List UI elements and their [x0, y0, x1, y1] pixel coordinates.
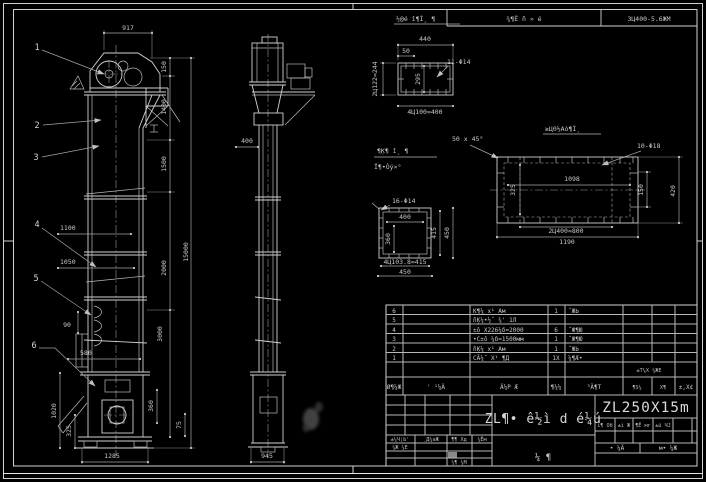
side-view: 400 945	[236, 34, 315, 464]
cad-drawing-screenshot: ¾¶Ё ñ » é 3Ц400-5.6ЖМ	[0, 0, 706, 482]
dim-400: 400	[241, 137, 253, 145]
row-material: ˝Ж¶Ю	[568, 336, 583, 343]
title-block: ±¼Ч¦Ь' ¸Д¼аЖ ¶¶ Хд ¼Ём ¼Ж ¼Е ¼¶ ¼М ZL¶• …	[386, 395, 697, 466]
dim-90: 90	[63, 321, 71, 329]
sheet-label-left: • ¼Ä	[610, 445, 625, 452]
dim-sq-450r: 450	[443, 227, 451, 239]
balloon-2: 2	[34, 121, 39, 131]
holes-10-d18: 10-Φ18	[637, 142, 661, 150]
drawing-frame	[3, 3, 703, 479]
dim-2x122: 2Ц122=244	[371, 61, 379, 96]
dim-295: 295	[414, 73, 422, 85]
sig-header-3: ¶¶ Хд	[451, 437, 467, 443]
row-qty: 1	[554, 336, 558, 343]
row-seq: 4	[392, 327, 396, 334]
screen-smudge	[303, 402, 323, 432]
dim-sq-450b: 450	[399, 268, 411, 276]
info-label-3: ¶Ё мг	[635, 422, 651, 429]
detail-square-flange: 16-Φ14 400 360 415 450 4Ц103.8=415 450	[372, 197, 453, 276]
dim-panel-325: 325	[509, 184, 517, 196]
dim-945: 945	[261, 452, 273, 460]
balloon-5: 5	[33, 274, 38, 284]
row-seq: 2	[392, 346, 396, 353]
dim-917: 917	[122, 24, 134, 32]
top-right-strip: ¾¶Ё ñ » é 3Ц400-5.6ЖМ	[447, 10, 697, 26]
strip-cell-1: ¾¶Ё ñ » é	[506, 14, 541, 23]
row-seq: 3	[392, 336, 396, 343]
header-qty: ¶¼¼	[551, 384, 562, 391]
dim-1020: 1020	[50, 403, 58, 419]
dim-sq-360: 360	[384, 233, 392, 245]
balloon-6: 6	[31, 341, 36, 351]
dim-2x400: 2Ц400=800	[548, 227, 583, 235]
cad-canvas: ¾¶Ё ñ » é 3Ц400-5.6ЖМ	[0, 0, 706, 482]
strip-cell-2: 3Ц400-5.6ЖМ	[627, 15, 670, 23]
dim-440: 440	[419, 35, 431, 43]
drawing-subtitle: ¼ ¶	[535, 453, 551, 463]
balloon-4: 4	[34, 220, 39, 230]
header-remark: ±,Х¢	[679, 384, 694, 391]
dim-2000: 2000	[160, 260, 168, 276]
header-weight-1: ¶Ѕ¼	[632, 385, 641, 391]
dim-1400: 1400	[160, 99, 168, 115]
row-qty: 1Х	[552, 355, 560, 362]
sig-header-2: ¸Д¼аЖ	[423, 437, 439, 443]
header-weight: ±Т¼Х ¼ЖЕ	[637, 368, 662, 374]
holes-11-d14: 11-Φ14	[447, 58, 471, 66]
info-label-1: ì¶ Об	[597, 422, 613, 429]
note-line-1: ¶Ķ¶ î¸ ¶	[377, 147, 408, 156]
dim-1098: 1098	[564, 175, 580, 183]
row-name: Ķ¶¼ х¹ Ам	[473, 308, 506, 315]
row-seq: 6	[392, 308, 396, 315]
dim-580: 580	[80, 349, 92, 357]
dim-3000: 3000	[156, 326, 164, 342]
sig-row-2: ¼Ж ¼Е	[392, 445, 408, 451]
highlight-cell	[448, 452, 457, 458]
balloon-3: 3	[33, 153, 38, 163]
header-weight-2: Х¶	[660, 385, 666, 391]
row-name: СÄ¼˝ Х¹ ¶Д	[473, 355, 510, 362]
row-name: ñĶ¼ х¹ Ам	[473, 346, 506, 353]
info-label-4: ±ü ЧЈ	[655, 423, 671, 429]
dim-1190: 1190	[559, 238, 575, 246]
sheet-label-right: м• ¼Ж	[659, 445, 677, 452]
dim-150: 150	[160, 61, 168, 73]
header-seq: Ø¶¼Ж	[387, 384, 402, 391]
row-qty: 6	[554, 327, 558, 334]
sig-header-4: ¼Ём	[477, 436, 486, 443]
header-name: Ä¼Р Æ	[500, 384, 518, 391]
dim-sq-415: 415	[430, 227, 438, 239]
sig-row-4: ¼¶ ¼М	[451, 460, 467, 466]
row-qty: 1	[554, 308, 558, 315]
row-material: ˝Ж¶Ю	[568, 327, 583, 334]
header-material: ³Ä¶Т	[587, 384, 602, 391]
info-label-2: ±ì Ж	[618, 422, 631, 429]
detail-casing-panel: ≥Ц0½Аò¶Ì¸ 50 x 45° 10-Φ18 1098 325	[452, 124, 683, 246]
balloon-1: 1	[34, 43, 39, 53]
row-name: •С±ô ¼δ=1500мм	[473, 336, 524, 343]
dim-1100: 1100	[60, 224, 76, 232]
drawing-title: ZL¶• ê½ì d é¼ú	[485, 412, 602, 427]
detail-panel-title: ≥Ц0½Аò¶Ì¸	[545, 124, 580, 133]
header-code: ' ¹¼Ä	[427, 384, 445, 391]
row-name: ±ô Х226¼δ=2000	[473, 327, 524, 334]
dim-1285: 1285	[104, 452, 120, 460]
front-view-dimensions: 917 150 1400 1500 2000 3000 15000 1100 1…	[50, 24, 195, 464]
detail-flange-plate: ½@é î¶Ì¸ ¶ 440 50 2Ц122=244 295 11-Φ14 4…	[371, 14, 471, 171]
chamfer-note: 50 x 45°	[452, 135, 483, 143]
dim-325: 325	[65, 425, 73, 437]
dim-50: 50	[402, 47, 410, 55]
row-material: ¼¶Æ•	[568, 355, 582, 362]
dim-sq-400: 400	[399, 213, 411, 221]
dim-4x100: 4Ц100=400	[407, 108, 442, 116]
holes-16-d14: 16-Φ14	[392, 197, 416, 205]
balloon-labels: 1 2 3 4 5 6	[31, 43, 104, 386]
sig-header-1: ±¼Ч¦Ь'	[391, 437, 410, 443]
dim-360: 360	[147, 400, 155, 412]
dim-sq-4x103: 4Ц103.8=415	[383, 258, 426, 266]
detail-flange-title: ½@é î¶Ì¸ ¶	[396, 14, 435, 23]
row-material: ˝ЖЬ	[568, 308, 579, 315]
row-name: ñĶ¼•½˝ ¾' 1Л	[473, 317, 517, 324]
row-material: ˝ЖЬ	[568, 346, 579, 353]
dim-panel-150: 150	[637, 184, 645, 196]
model-number: ZL250X15m	[602, 400, 690, 416]
dim-15000: 15000	[182, 242, 190, 262]
dim-75: 75	[175, 421, 183, 429]
row-qty: 1	[554, 346, 558, 353]
row-seq: 1	[392, 355, 396, 362]
row-seq: 5	[392, 317, 396, 324]
dim-1050: 1050	[60, 258, 76, 266]
note-line-2: Ï¶•Òý×°	[374, 162, 401, 171]
dim-1500: 1500	[160, 156, 168, 172]
dim-panel-420: 420	[669, 185, 677, 197]
